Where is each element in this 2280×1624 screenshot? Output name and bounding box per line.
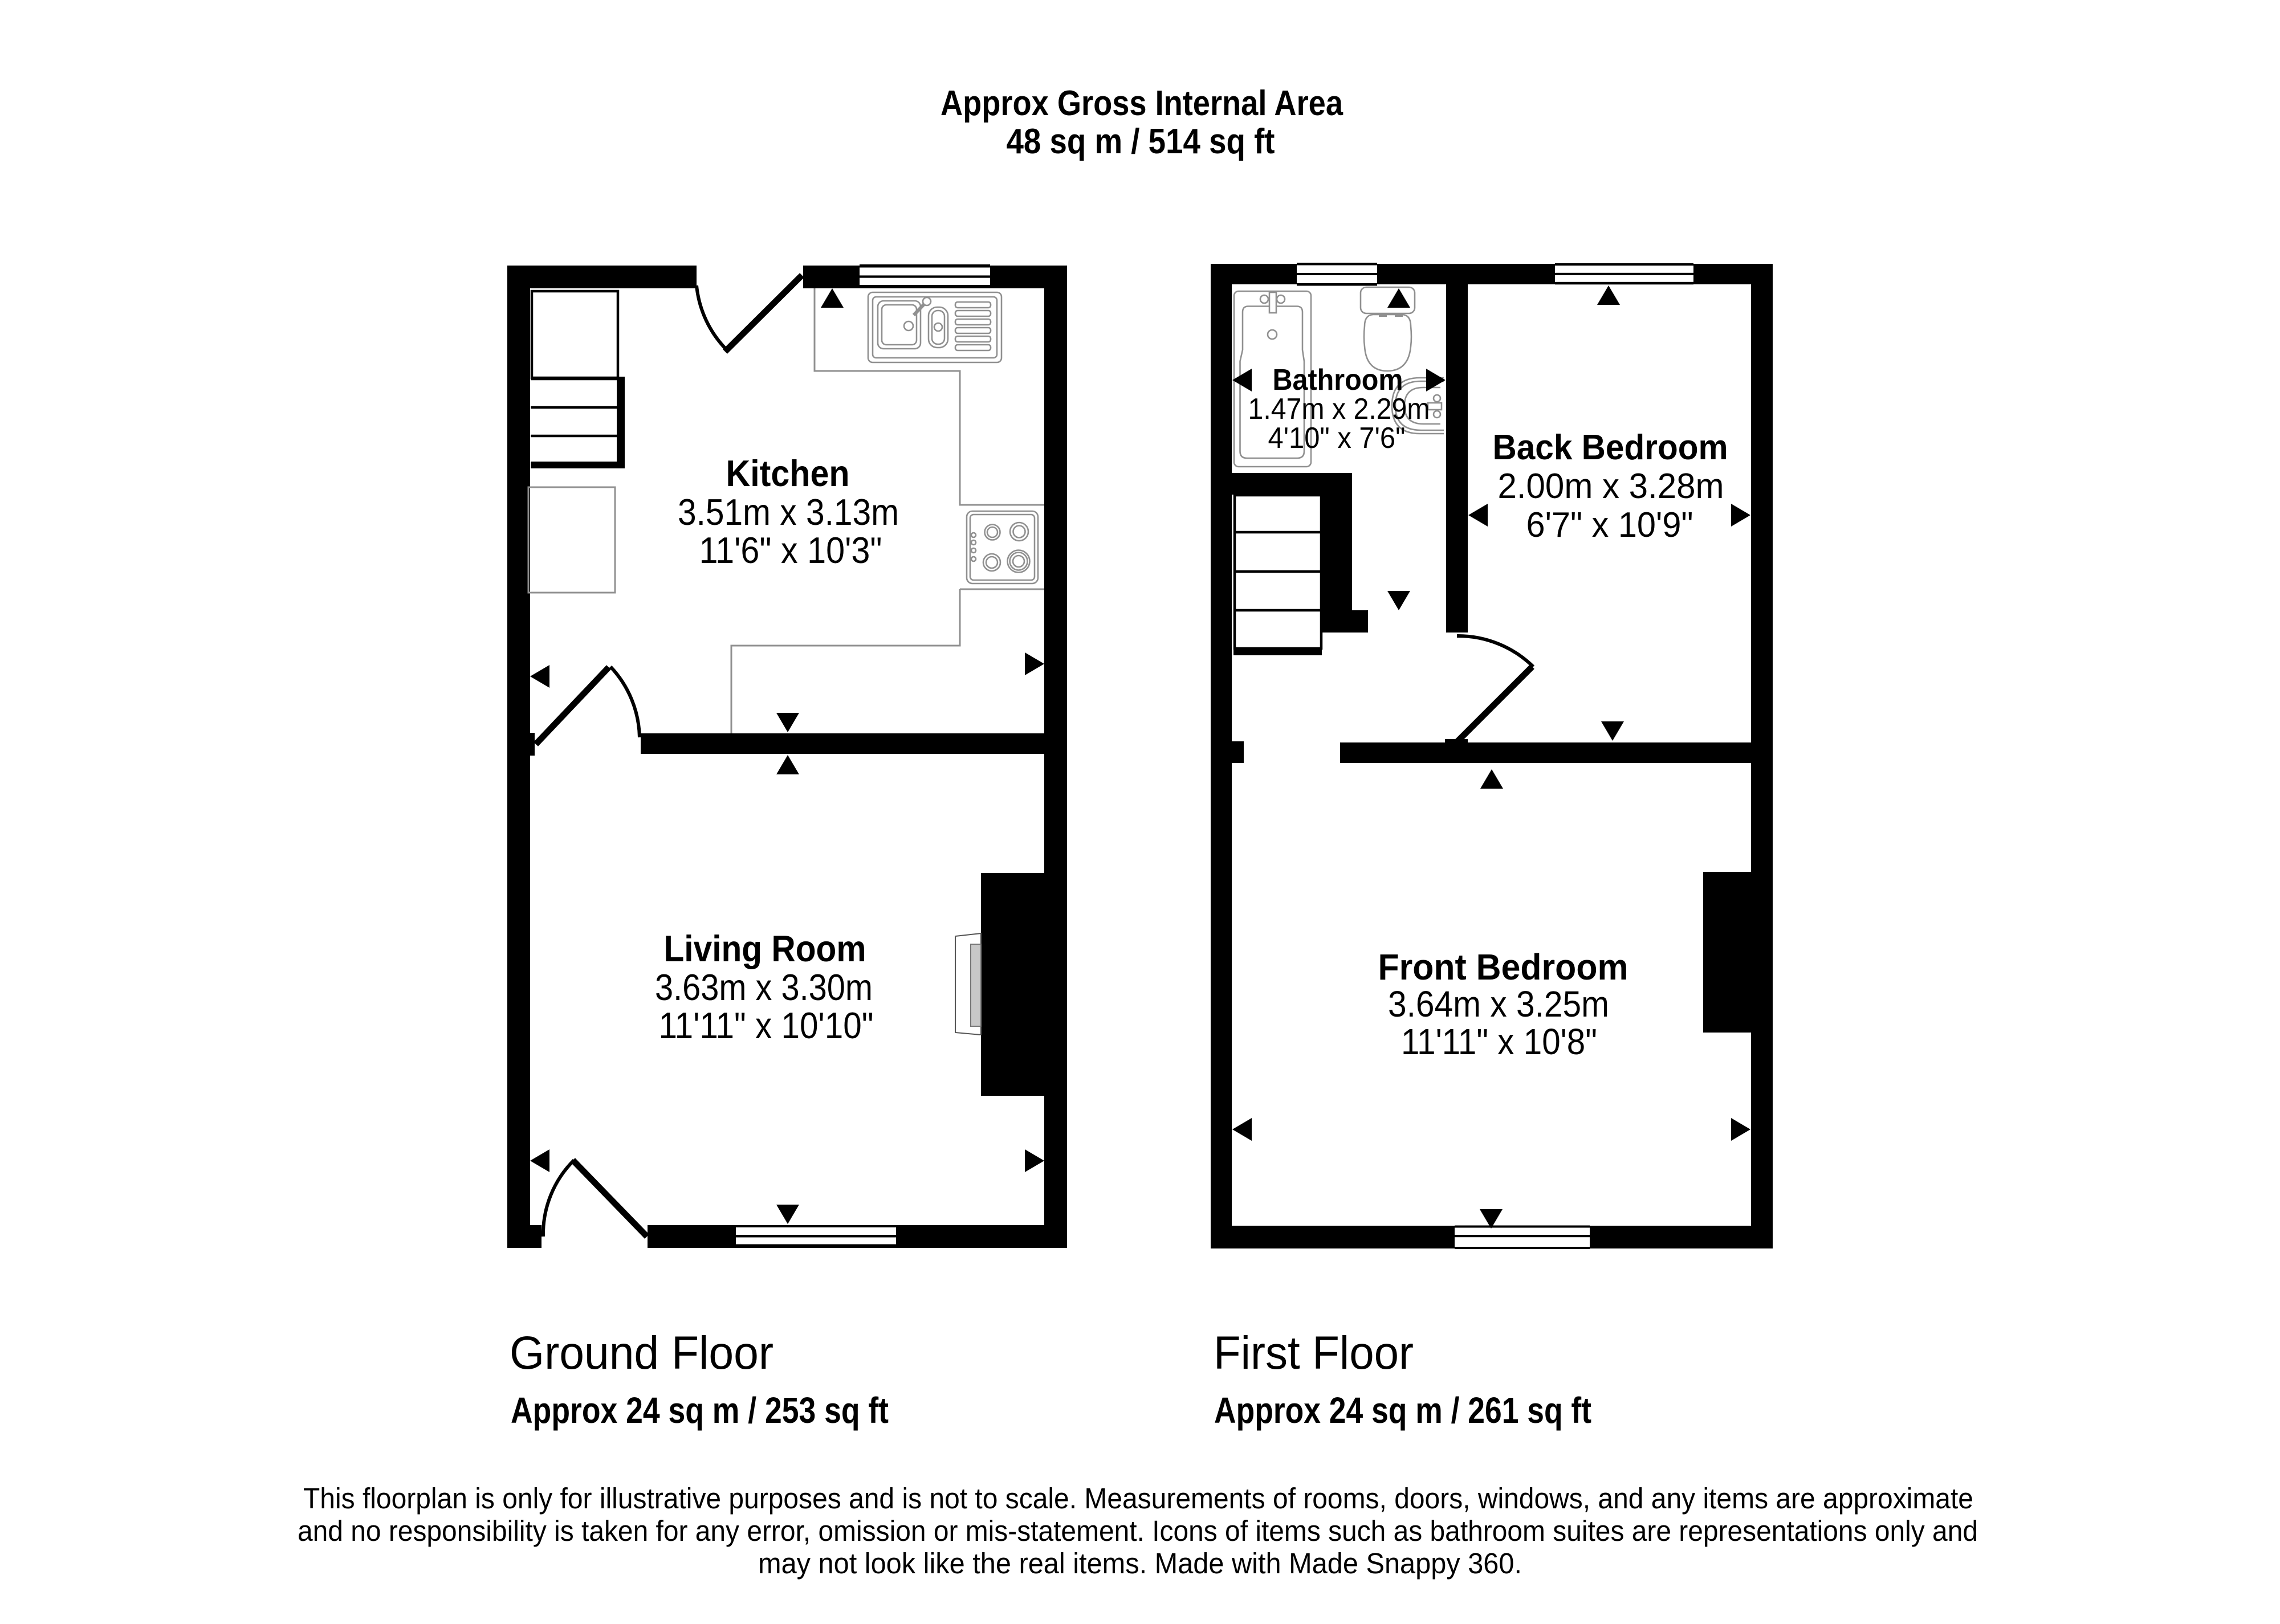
svg-text:Approx Gross Internal Area: Approx Gross Internal Area xyxy=(940,84,1343,123)
svg-text:3.51m x 3.13m: 3.51m x 3.13m xyxy=(678,491,899,533)
svg-text:3.63m x 3.30m: 3.63m x 3.30m xyxy=(655,966,873,1008)
svg-text:Approx 24 sq m / 261 sq ft: Approx 24 sq m / 261 sq ft xyxy=(1214,1390,1591,1431)
svg-text:Back Bedroom: Back Bedroom xyxy=(1493,428,1728,467)
svg-text:48 sq m / 514 sq ft: 48 sq m / 514 sq ft xyxy=(1007,122,1275,161)
svg-text:Approx 24 sq m / 253 sq ft: Approx 24 sq m / 253 sq ft xyxy=(511,1390,889,1431)
svg-text:This floorplan is only for ill: This floorplan is only for illustrative … xyxy=(303,1482,1973,1515)
svg-text:6'7" x 10'9": 6'7" x 10'9" xyxy=(1526,505,1693,545)
svg-text:1.47m x 2.29m: 1.47m x 2.29m xyxy=(1248,393,1430,426)
svg-text:Kitchen: Kitchen xyxy=(726,452,850,494)
svg-text:and no responsibility is taken: and no responsibility is taken for any e… xyxy=(298,1515,1978,1547)
svg-text:Bathroom: Bathroom xyxy=(1273,364,1403,397)
svg-text:3.64m x 3.25m: 3.64m x 3.25m xyxy=(1388,984,1609,1025)
svg-text:Living Room: Living Room xyxy=(664,928,866,969)
svg-text:Ground Floor: Ground Floor xyxy=(510,1327,773,1379)
svg-text:11'6" x 10'3": 11'6" x 10'3" xyxy=(699,529,882,571)
svg-text:11'11" x 10'8": 11'11" x 10'8" xyxy=(1401,1021,1597,1062)
svg-text:4'10" x 7'6": 4'10" x 7'6" xyxy=(1268,422,1406,455)
svg-text:2.00m x 3.28m: 2.00m x 3.28m xyxy=(1498,467,1724,506)
svg-text:11'11" x 10'10": 11'11" x 10'10" xyxy=(659,1005,874,1046)
svg-text:may not look like the real ite: may not look like the real items. Made w… xyxy=(758,1547,1522,1580)
svg-text:Front Bedroom: Front Bedroom xyxy=(1378,946,1628,988)
svg-text:First Floor: First Floor xyxy=(1214,1327,1414,1379)
